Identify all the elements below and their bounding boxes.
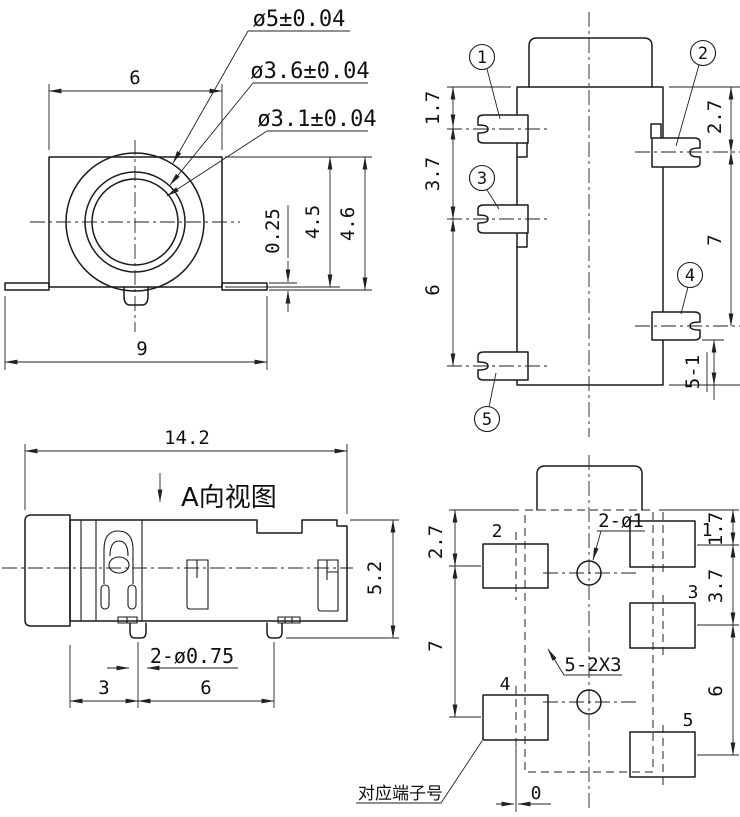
fp-pad-label-2: 2	[492, 521, 503, 542]
aview-spring-slot-right	[128, 585, 136, 609]
fp-dim17-label: 1.7	[705, 512, 727, 546]
side-body-outline	[517, 87, 663, 385]
balloon-4-number: 4	[685, 266, 695, 286]
terminal-3-step	[517, 233, 527, 247]
fp-dim37-label: 3.7	[705, 569, 727, 603]
aview-dim142-label: 14.2	[164, 427, 210, 449]
aview-title: A向视图	[181, 483, 277, 513]
aview-spring-arch-inner	[110, 541, 128, 556]
front-dim6-label: 6	[129, 67, 140, 89]
side-view: 1 2 3 4 5 1.7 3.7 6 2.7 7 5-1	[422, 12, 740, 437]
front-dim46-label: 4.6	[337, 207, 359, 241]
fp-pad-label-3: 3	[688, 582, 699, 603]
side-dim17-label: 1.7	[422, 91, 444, 125]
dia-middle-label: ø3.6±0.04	[250, 59, 369, 84]
dia-inner-label: ø3.1±0.04	[257, 107, 376, 132]
side-dim27-label: 2.7	[704, 100, 726, 134]
terminal-pin-2	[652, 138, 700, 167]
side-dim7-label: 7	[704, 234, 726, 245]
balloon-2-number: 2	[698, 44, 708, 64]
a-view: 14.2 A向视图 5.2 2-ø0.75 3 6	[2, 427, 399, 708]
dia-middle-leader	[170, 83, 368, 185]
front-dim025-label: 0.25	[262, 208, 284, 254]
side-dim37-label: 3.7	[422, 157, 444, 191]
aview-cap-outline	[25, 515, 70, 626]
aview-dim52-label: 5.2	[364, 561, 386, 595]
front-dim45-label: 4.5	[302, 205, 324, 239]
balloon-1-leader	[487, 69, 500, 119]
aview-peg-right	[267, 623, 282, 638]
front-view: 6 ø5±0.04 ø3.6±0.04 ø3.1±0.04 4.5 4.6 0.…	[5, 7, 377, 370]
fp-right-extensions	[659, 510, 739, 755]
balloon-4-leader	[681, 287, 688, 314]
aview-middle-contact	[187, 560, 208, 609]
fp-pad-label-4: 4	[500, 674, 511, 695]
side-dim6-label: 6	[422, 284, 444, 295]
side-dim51-label: 5-1	[682, 355, 704, 389]
fp-pad-size-label: 5-2X3	[564, 654, 621, 676]
fp-hole-centerlines	[543, 573, 637, 702]
aview-peg-left	[130, 623, 146, 638]
dia-inner-leader	[167, 131, 368, 196]
fp-hole-note-leader	[593, 531, 645, 560]
front-dim6-extensions	[49, 84, 222, 150]
aview-peg-dia-label: 2-ø0.75	[150, 644, 234, 668]
phone-jack-drawing: 6 ø5±0.04 ø3.6±0.04 ø3.1±0.04 4.5 4.6 0.…	[0, 0, 740, 817]
aview-comb-right	[278, 617, 300, 623]
front-mount-tab-right	[222, 283, 267, 290]
fp-pad-label-5: 5	[683, 710, 694, 731]
fp-cap-outline	[537, 466, 642, 510]
fp-zero-label: 0	[531, 783, 542, 804]
fp-dim27-label: 2.7	[425, 525, 447, 559]
fp-dim7-label: 7	[425, 640, 447, 651]
fp-terminal-note-label: 对应端子号	[358, 784, 443, 804]
front-mount-tab-left	[5, 283, 49, 290]
fp-dim6-label: 6	[705, 685, 727, 696]
balloon-1-number: 1	[477, 48, 487, 68]
dia-outer-label: ø5±0.04	[253, 7, 346, 32]
fp-hole-note-label: 2-ø1	[598, 510, 644, 532]
aview-comb-left	[118, 617, 137, 623]
engineering-drawing-page: 6 ø5±0.04 ø3.6±0.04 ø3.1±0.04 4.5 4.6 0.…	[0, 0, 740, 817]
balloon-2-leader	[676, 65, 699, 146]
balloon-5-number: 5	[482, 410, 492, 430]
aview-spring-ellipse	[109, 557, 129, 573]
balloon-3-number: 3	[477, 169, 487, 189]
side-dim51-underline	[707, 352, 714, 400]
side-cap-outline	[529, 38, 652, 87]
terminal-1-step	[517, 143, 527, 157]
footprint-view: 2 1 3 4 5 2-ø1 5-2X3 对应端子号 0 2.7 7 1.7 3…	[356, 455, 739, 812]
terminal-2-step	[651, 124, 661, 138]
dia-outer-leader	[173, 31, 350, 163]
front-dim9-label: 9	[136, 338, 147, 360]
aview-spring-slot-left	[101, 585, 109, 609]
aview-dim3-label: 3	[98, 677, 109, 699]
aview-dim6-label: 6	[200, 677, 211, 699]
